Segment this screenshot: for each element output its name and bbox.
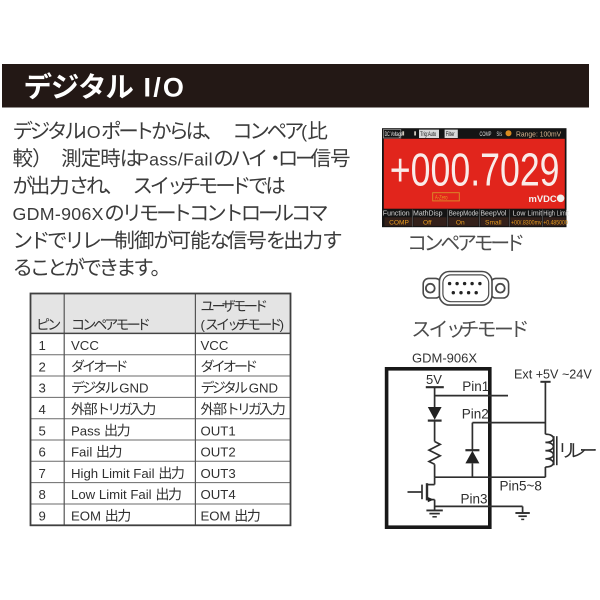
svg-text:DC Voltage: DC Voltage xyxy=(385,131,403,138)
svg-text:Off: Off xyxy=(423,220,432,227)
svg-text:Pass/Fail: Pass/Fail xyxy=(137,150,213,170)
svg-text:COMP: COMP xyxy=(389,220,409,227)
svg-text:High Limit Fail: High Limit Fail xyxy=(71,466,158,481)
svg-text:): ) xyxy=(280,318,284,333)
svg-text:9: 9 xyxy=(39,509,46,524)
svg-text:Pin3: Pin3 xyxy=(461,492,488,507)
svg-text:+00/.8300mv: +00/.8300mv xyxy=(511,220,542,227)
svg-text:Pass: Pass xyxy=(71,423,104,438)
svg-text:(: ( xyxy=(301,122,307,142)
svg-text:Ext +5V ~24V: Ext +5V ~24V xyxy=(514,368,592,382)
svg-text:5V: 5V xyxy=(426,372,442,387)
svg-text:GDM-906X: GDM-906X xyxy=(13,204,104,224)
svg-text:On: On xyxy=(456,220,465,227)
svg-text:4: 4 xyxy=(39,402,46,417)
svg-text:Small: Small xyxy=(485,220,502,227)
svg-text:EOM: EOM xyxy=(201,509,235,524)
svg-text:GND: GND xyxy=(116,381,149,396)
svg-text:2: 2 xyxy=(39,359,46,374)
svg-text:Pin1: Pin1 xyxy=(462,379,489,394)
svg-text:VCC: VCC xyxy=(71,338,99,353)
svg-text:VCC: VCC xyxy=(201,338,229,353)
svg-text:5: 5 xyxy=(39,423,46,438)
svg-text:Range: 100mV: Range: 100mV xyxy=(516,131,562,138)
svg-text:Pin2: Pin2 xyxy=(462,406,489,421)
svg-text:IO: IO xyxy=(82,122,101,142)
svg-text:OUT2: OUT2 xyxy=(201,445,236,460)
svg-text:OUT3: OUT3 xyxy=(201,466,236,481)
svg-text:GND: GND xyxy=(245,381,278,396)
svg-text:+0.485000: +0.485000 xyxy=(543,220,568,227)
svg-text:1: 1 xyxy=(39,338,46,353)
svg-text:GDM-906X: GDM-906X xyxy=(412,351,477,366)
svg-text:8: 8 xyxy=(39,487,46,502)
svg-text:Low Limit Fail: Low Limit Fail xyxy=(71,487,155,502)
svg-text:Function: Function xyxy=(383,210,410,217)
svg-text:7: 7 xyxy=(39,466,46,481)
svg-text:A-Zero: A-Zero xyxy=(435,195,447,202)
svg-text:MathDisp: MathDisp xyxy=(413,210,443,217)
svg-text:S/s: S/s xyxy=(497,131,503,138)
svg-text:6: 6 xyxy=(39,445,46,460)
svg-text:+000.7029: +000.7029 xyxy=(390,143,560,196)
svg-text:Low Limit: Low Limit xyxy=(513,210,543,217)
svg-text:COMP: COMP xyxy=(480,131,492,138)
svg-text:BeepMode: BeepMode xyxy=(449,210,479,217)
svg-text:mVDC: mVDC xyxy=(529,193,557,204)
svg-text:Fail: Fail xyxy=(71,445,96,460)
svg-text:I/O: I/O xyxy=(144,73,187,103)
svg-text:EOM: EOM xyxy=(71,509,105,524)
svg-text:(: ( xyxy=(201,318,206,333)
svg-text:OUT4: OUT4 xyxy=(201,487,236,502)
svg-text:BeepVol: BeepVol xyxy=(480,210,507,217)
svg-text:High Limit: High Limit xyxy=(543,210,569,218)
svg-text:Pin5~8: Pin5~8 xyxy=(500,479,542,494)
svg-text:3: 3 xyxy=(39,381,46,396)
svg-text:Filter: Filter xyxy=(446,131,455,138)
svg-text:Trig:Auto: Trig:Auto xyxy=(420,131,436,138)
svg-text:OUT1: OUT1 xyxy=(201,423,236,438)
